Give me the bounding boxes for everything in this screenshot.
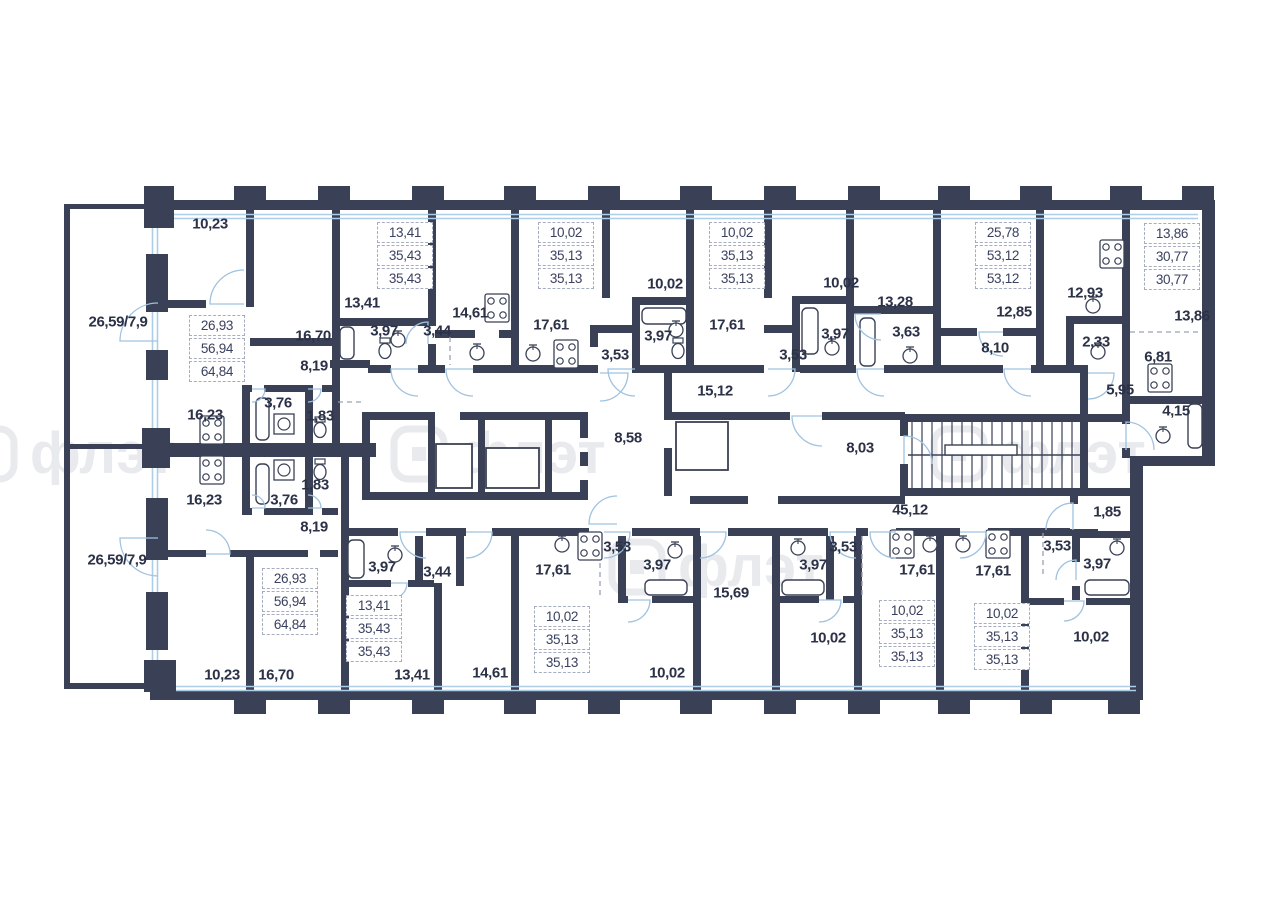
area-label: 16,23 bbox=[186, 493, 222, 508]
area-label: 17,61 bbox=[975, 564, 1011, 579]
apartment-summary-value: 30,77 bbox=[1144, 246, 1200, 267]
sink-icon bbox=[526, 345, 540, 361]
area-label: 12,93 bbox=[1067, 286, 1103, 301]
apartment-summary-value: 35,13 bbox=[538, 245, 594, 266]
apartment-summary-value: 10,02 bbox=[879, 600, 935, 621]
area-label: 26,59/7,9 bbox=[89, 315, 148, 330]
floor-plan: флэтфлэтфлэтфлэт 10,2313,413,973,4414,61… bbox=[0, 0, 1280, 905]
stove-icon bbox=[890, 530, 914, 558]
area-label: 17,61 bbox=[535, 563, 571, 578]
apartment-summary-value: 10,02 bbox=[709, 222, 765, 243]
sink-icon bbox=[1156, 427, 1170, 443]
apartment-summary-box: 10,0235,1335,13 bbox=[709, 222, 765, 289]
area-label: 8,19 bbox=[300, 520, 328, 535]
area-label: 3,97 bbox=[821, 327, 849, 342]
area-label: 3,53 bbox=[779, 348, 807, 363]
apartment-summary-box: 13,4135,4335,43 bbox=[346, 595, 402, 662]
washer-icon bbox=[274, 414, 294, 434]
area-label: 10,02 bbox=[823, 276, 859, 291]
washer-icon bbox=[274, 460, 294, 480]
area-label: 26,59/7,9 bbox=[88, 553, 147, 568]
stove-icon bbox=[986, 530, 1010, 558]
area-label: 3,63 bbox=[892, 325, 920, 340]
stove-icon bbox=[554, 340, 578, 368]
area-label: 1,85 bbox=[1093, 505, 1121, 520]
apartment-summary-box: 13,8630,7730,77 bbox=[1144, 223, 1200, 290]
door-arc bbox=[446, 369, 473, 396]
area-label: 10,02 bbox=[647, 277, 683, 292]
area-label: 3,97 bbox=[370, 324, 398, 339]
door-arc bbox=[589, 496, 617, 524]
bathtub-icon bbox=[645, 580, 687, 595]
apartment-summary-value: 10,02 bbox=[974, 603, 1030, 624]
apartment-summary-value: 26,93 bbox=[189, 315, 245, 336]
apartment-summary-box: 13,4135,4335,43 bbox=[377, 222, 433, 289]
bathtub-icon bbox=[340, 327, 354, 359]
bathtub-icon bbox=[1085, 580, 1129, 595]
area-label: 1,83 bbox=[301, 478, 329, 493]
door-arc bbox=[1064, 601, 1084, 621]
sink-icon bbox=[903, 347, 917, 363]
apartment-summary-value: 64,84 bbox=[262, 614, 318, 635]
area-label: 3,97 bbox=[643, 558, 671, 573]
area-label: 3,53 bbox=[603, 540, 631, 555]
area-label: 3,97 bbox=[368, 560, 396, 575]
apartment-summary-box: 26,9356,9464,84 bbox=[262, 568, 318, 635]
area-label: 3,97 bbox=[1083, 557, 1111, 572]
area-label: 14,61 bbox=[472, 666, 508, 681]
sink-icon bbox=[923, 536, 937, 552]
apartment-summary-value: 35,43 bbox=[346, 641, 402, 662]
door-arc bbox=[1004, 369, 1031, 396]
stove-icon bbox=[485, 294, 509, 322]
area-label: 3,53 bbox=[601, 348, 629, 363]
area-label: 45,12 bbox=[892, 503, 928, 518]
area-label: 8,03 bbox=[846, 441, 874, 456]
door-arc bbox=[628, 600, 650, 622]
area-label: 2,33 bbox=[1082, 335, 1110, 350]
toilet-icon bbox=[672, 338, 684, 359]
apartment-summary-value: 35,43 bbox=[377, 245, 433, 266]
apartment-summary-value: 26,93 bbox=[262, 568, 318, 589]
door-arc bbox=[466, 532, 492, 558]
stove-icon bbox=[200, 456, 224, 484]
apartment-summary-value: 13,41 bbox=[377, 222, 433, 243]
apartment-summary-value: 64,84 bbox=[189, 361, 245, 382]
area-label: 13,41 bbox=[344, 296, 380, 311]
area-label: 16,70 bbox=[258, 668, 294, 683]
area-label: 3,76 bbox=[270, 493, 298, 508]
apartment-summary-value: 35,13 bbox=[879, 646, 935, 667]
area-label: 16,70 bbox=[295, 329, 331, 344]
apartment-summary-value: 35,13 bbox=[709, 245, 765, 266]
apartment-summary-value: 35,13 bbox=[534, 652, 590, 673]
area-label: 15,12 bbox=[697, 384, 733, 399]
area-label: 10,23 bbox=[192, 217, 228, 232]
door-arc bbox=[210, 270, 244, 304]
area-label: 16,23 bbox=[187, 408, 223, 423]
door-arc bbox=[819, 600, 841, 622]
apartment-summary-value: 13,86 bbox=[1144, 223, 1200, 244]
area-label: 8,10 bbox=[981, 341, 1009, 356]
stove-icon bbox=[1148, 364, 1172, 392]
sink-icon bbox=[956, 536, 970, 552]
door-arc bbox=[391, 369, 418, 396]
apartment-summary-box: 10,0235,1335,13 bbox=[534, 606, 590, 673]
apartment-summary-box: 25,7853,1253,12 bbox=[975, 222, 1031, 289]
area-label: 8,58 bbox=[614, 431, 642, 446]
bathtub-icon bbox=[782, 580, 824, 595]
area-label: 6,81 bbox=[1144, 350, 1172, 365]
apartment-summary-value: 10,02 bbox=[534, 606, 590, 627]
apartment-summary-value: 35,13 bbox=[709, 268, 765, 289]
floor-plan-drawing: флэтфлэтфлэтфлэт bbox=[0, 0, 1280, 905]
area-label: 13,28 bbox=[877, 295, 913, 310]
area-label: 8,19 bbox=[300, 359, 328, 374]
area-label: 5,95 bbox=[1106, 383, 1134, 398]
area-label: 15,69 bbox=[713, 586, 749, 601]
apartment-summary-value: 35,13 bbox=[538, 268, 594, 289]
door-arc bbox=[768, 369, 795, 396]
apartment-summary-value: 25,78 bbox=[975, 222, 1031, 243]
area-label: 1,83 bbox=[306, 409, 334, 424]
door-arc bbox=[1056, 560, 1076, 580]
sink-icon bbox=[470, 344, 484, 360]
apartment-summary-value: 10,02 bbox=[538, 222, 594, 243]
sink-icon bbox=[555, 536, 569, 552]
toilet-icon bbox=[379, 338, 391, 359]
area-label: 17,61 bbox=[533, 318, 569, 333]
area-label: 14,61 bbox=[452, 306, 488, 321]
apartment-summary-value: 56,94 bbox=[189, 338, 245, 359]
stove-icon bbox=[1100, 240, 1124, 268]
apartment-summary-box: 26,9356,9464,84 bbox=[189, 315, 245, 382]
door-arc bbox=[206, 530, 230, 554]
area-label: 3,44 bbox=[423, 565, 451, 580]
area-label: 3,97 bbox=[799, 558, 827, 573]
bathtub-icon bbox=[860, 318, 875, 366]
area-label: 10,02 bbox=[649, 666, 685, 681]
area-label: 10,23 bbox=[204, 668, 240, 683]
bathtub-icon bbox=[256, 464, 269, 504]
apartment-summary-value: 35,13 bbox=[534, 629, 590, 650]
area-label: 3,76 bbox=[264, 396, 292, 411]
apartment-summary-value: 35,43 bbox=[377, 268, 433, 289]
apartment-summary-box: 10,0235,1335,13 bbox=[879, 600, 935, 667]
area-label: 17,61 bbox=[709, 318, 745, 333]
area-label: 13,86 bbox=[1174, 309, 1210, 324]
area-label: 3,44 bbox=[423, 324, 451, 339]
area-label: 3,53 bbox=[829, 540, 857, 555]
door-arc bbox=[792, 416, 822, 446]
sink-icon bbox=[1110, 539, 1124, 555]
stove-icon bbox=[578, 532, 602, 560]
door-arc bbox=[1046, 503, 1073, 530]
bathtub-icon bbox=[348, 540, 364, 578]
apartment-summary-value: 35,13 bbox=[974, 626, 1030, 647]
area-label: 3,97 bbox=[644, 329, 672, 344]
door-arc bbox=[904, 436, 932, 464]
area-label: 17,61 bbox=[899, 563, 935, 578]
apartment-summary-box: 10,0235,1335,13 bbox=[538, 222, 594, 289]
door-arc bbox=[857, 369, 884, 396]
area-label: 10,02 bbox=[1073, 630, 1109, 645]
apartment-summary-value: 53,12 bbox=[975, 268, 1031, 289]
apartment-summary-value: 35,13 bbox=[974, 649, 1030, 670]
apartment-summary-box: 10,0235,1335,13 bbox=[974, 603, 1030, 670]
area-label: 3,53 bbox=[1043, 539, 1071, 554]
apartment-summary-value: 30,77 bbox=[1144, 269, 1200, 290]
apartment-summary-value: 13,41 bbox=[346, 595, 402, 616]
apartment-summary-value: 56,94 bbox=[262, 591, 318, 612]
area-label: 13,41 bbox=[394, 668, 430, 683]
area-label: 10,02 bbox=[810, 631, 846, 646]
apartment-summary-value: 35,43 bbox=[346, 618, 402, 639]
apartment-summary-value: 35,13 bbox=[879, 623, 935, 644]
area-label: 4,15 bbox=[1162, 404, 1190, 419]
apartment-summary-value: 53,12 bbox=[975, 245, 1031, 266]
area-label: 12,85 bbox=[996, 305, 1032, 320]
